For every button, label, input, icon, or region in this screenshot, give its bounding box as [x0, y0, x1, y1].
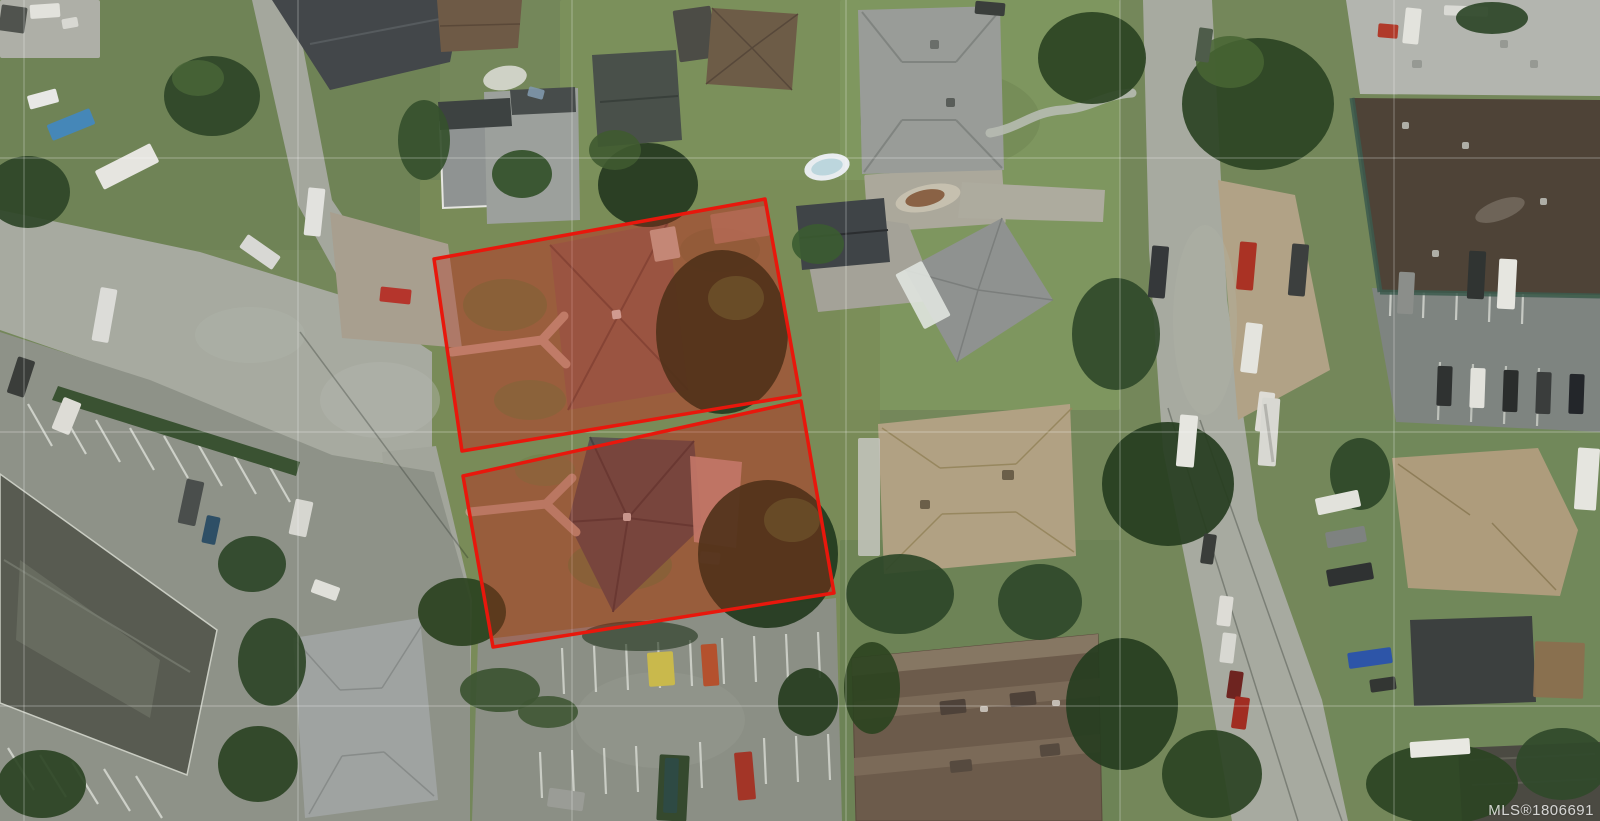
tree	[492, 150, 552, 198]
chimney	[1002, 470, 1014, 480]
skylight	[1500, 40, 1508, 48]
gray-building-dark-wing	[438, 98, 512, 130]
chimney	[946, 98, 955, 107]
tree	[846, 554, 954, 634]
tree-highlight	[172, 60, 224, 96]
tree	[1066, 638, 1178, 770]
chimney	[920, 500, 930, 509]
tree	[1102, 422, 1234, 546]
road-wear-3	[1173, 225, 1237, 415]
deck	[858, 438, 880, 556]
teal-car	[663, 758, 679, 813]
rooftop-unit-red	[1377, 23, 1398, 39]
road-wear-1	[320, 362, 440, 438]
bush	[518, 696, 578, 728]
tree	[778, 668, 838, 736]
white-car	[1469, 368, 1485, 408]
dark-car	[1502, 370, 1518, 412]
white-car	[1497, 259, 1518, 310]
tree	[1072, 278, 1160, 390]
skylight	[1462, 142, 1469, 149]
rooftop-unit	[1009, 691, 1036, 708]
skylight	[1530, 60, 1538, 68]
rooftop-unit	[949, 759, 972, 773]
tree	[1456, 2, 1528, 34]
yellow-container	[647, 651, 675, 687]
tree	[1038, 12, 1146, 104]
tree-highlight	[589, 130, 641, 170]
deck-brown	[1533, 641, 1585, 699]
dark-car	[974, 1, 1005, 17]
rooftop-vent	[980, 706, 988, 712]
rooftop-unit	[939, 699, 966, 716]
hedge-tall	[398, 100, 450, 180]
aerial-photo-svg	[0, 0, 1600, 821]
skylight	[1402, 122, 1409, 129]
rooftop-unit	[1039, 743, 1060, 757]
skylight	[1432, 250, 1439, 257]
chimney	[930, 40, 939, 49]
house-bottom-left-roof	[293, 618, 438, 818]
dark-car	[1467, 251, 1486, 300]
gray-car	[1397, 272, 1415, 315]
skylight	[1540, 198, 1547, 205]
tree	[218, 536, 286, 592]
tree	[218, 726, 298, 802]
tree	[792, 224, 844, 264]
rv-right-edge	[1574, 447, 1600, 510]
dark-car	[1436, 366, 1452, 406]
orange-car	[701, 643, 720, 686]
tree	[998, 564, 1082, 640]
dark-car	[1535, 372, 1551, 414]
property-boundaries	[434, 199, 834, 647]
tree	[1162, 730, 1262, 818]
tree	[844, 642, 900, 734]
trailer-top-left	[30, 3, 61, 19]
dark-car	[1568, 374, 1584, 414]
aerial-photo: MLS®1806691	[0, 0, 1600, 821]
tree	[238, 618, 306, 706]
rooftop-vent	[1052, 700, 1060, 706]
road-wear-2	[195, 307, 305, 363]
dark-flat-building	[1410, 616, 1536, 706]
tree	[0, 750, 86, 818]
skylight	[1412, 60, 1422, 68]
